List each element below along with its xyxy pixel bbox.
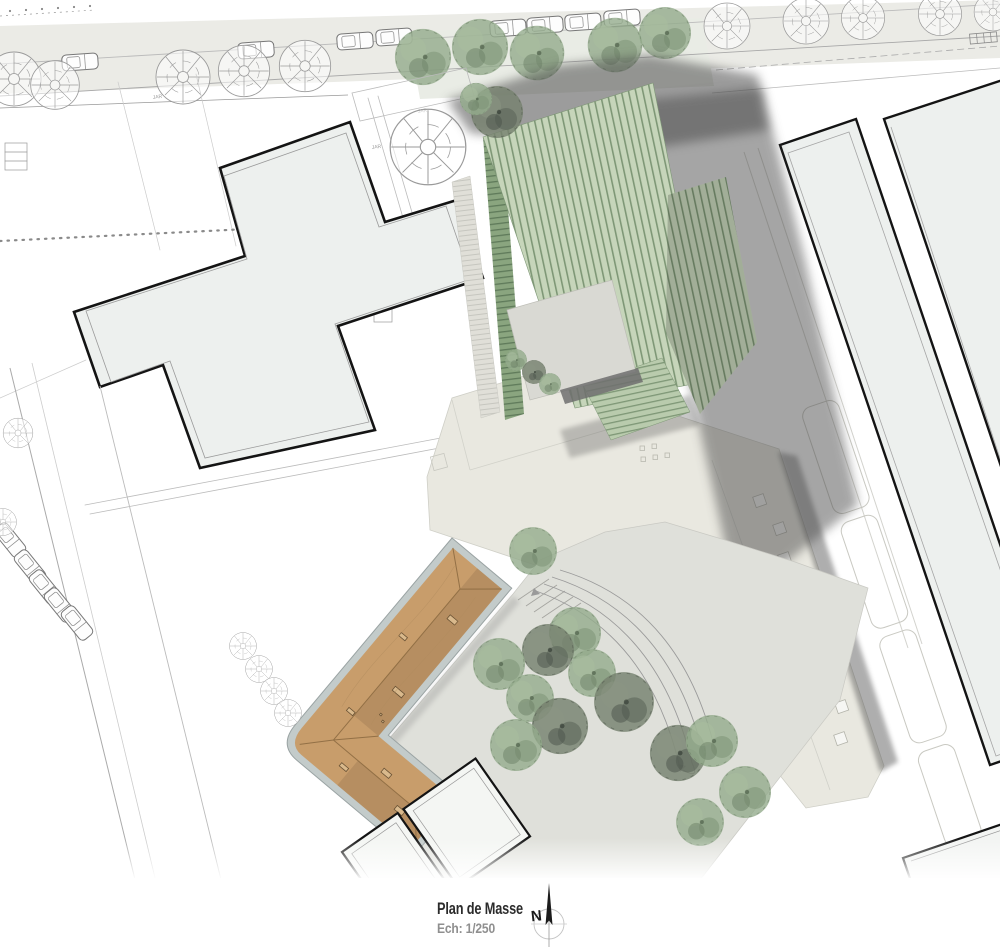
parked-cars-left xyxy=(0,521,95,642)
plan-scale: Ech: 1/250 xyxy=(437,920,495,936)
tree-icon xyxy=(686,715,738,767)
tree-icon xyxy=(490,719,542,771)
tree-icon xyxy=(0,509,17,536)
garden-tree-icon xyxy=(390,109,466,185)
tree-icon xyxy=(704,3,750,49)
tree-icon xyxy=(639,7,691,59)
hedge-trees xyxy=(230,633,302,727)
tree-icon xyxy=(230,633,257,660)
site-plan-drawing: JAR JAR JAR xyxy=(0,0,1000,949)
car xyxy=(336,32,373,50)
tree-icon xyxy=(218,45,269,96)
car xyxy=(59,604,94,642)
fade-band xyxy=(0,838,1000,880)
tree-icon xyxy=(395,29,451,85)
boundary-dots xyxy=(0,5,95,16)
plan-title: Plan de Masse xyxy=(437,899,523,918)
tree-icon xyxy=(841,0,884,40)
tree-icon xyxy=(460,83,492,115)
tree-icon xyxy=(719,766,771,818)
parking-bay xyxy=(877,627,949,745)
garden-label: JAR xyxy=(371,144,382,151)
tree-icon xyxy=(3,418,33,448)
tree-icon xyxy=(594,672,654,732)
tree-icon xyxy=(156,50,210,104)
tree-icon xyxy=(275,700,302,727)
tree-icon xyxy=(31,61,80,110)
tree-icon xyxy=(522,624,574,676)
tree-icon xyxy=(509,527,557,575)
tree-icon xyxy=(452,19,508,75)
garden-label: JAR xyxy=(152,94,163,101)
north-letter: N xyxy=(530,907,543,925)
bush-icon xyxy=(539,373,561,395)
tree-icon xyxy=(783,0,829,44)
site-plan-canvas: JAR JAR JAR xyxy=(0,0,1000,949)
tree-icon xyxy=(279,40,330,91)
